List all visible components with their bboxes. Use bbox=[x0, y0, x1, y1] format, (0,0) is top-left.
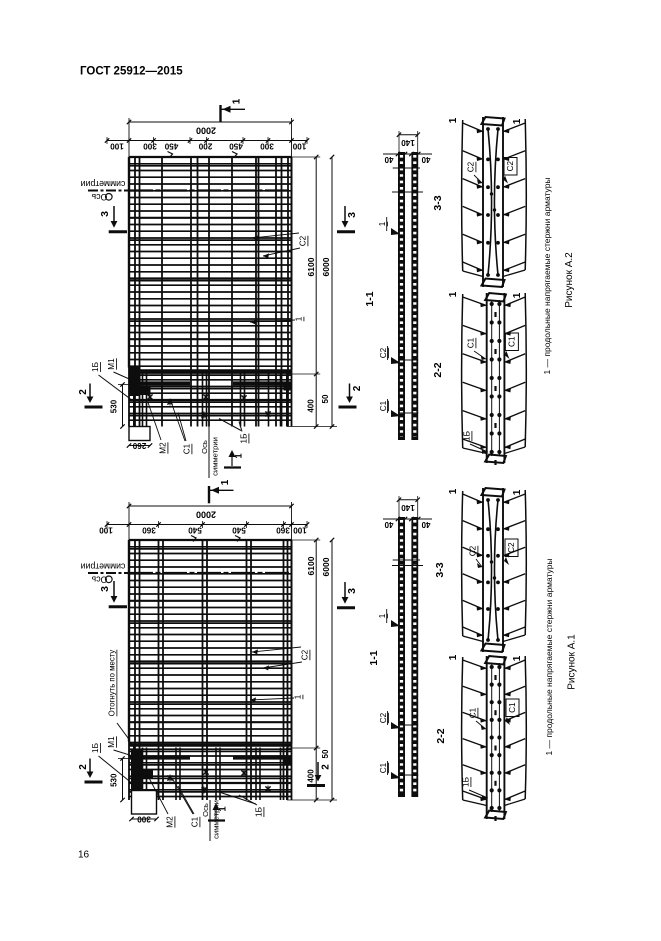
svg-text:Ось: Ось bbox=[201, 803, 210, 817]
svg-text:40: 40 bbox=[384, 155, 393, 164]
svg-text:2000: 2000 bbox=[196, 510, 216, 520]
svg-text:40: 40 bbox=[421, 520, 430, 529]
svg-text:100: 100 bbox=[292, 142, 306, 151]
svg-text:ГОСТ 25912—2015: ГОСТ 25912—2015 bbox=[80, 66, 183, 78]
svg-text:М2: М2 bbox=[159, 442, 168, 454]
svg-text:Ось: Ось bbox=[200, 440, 209, 454]
svg-text:450: 450 bbox=[229, 142, 243, 151]
svg-text:16: 16 bbox=[78, 850, 90, 861]
svg-text:3: 3 bbox=[99, 586, 111, 592]
svg-text:1: 1 bbox=[378, 613, 387, 618]
svg-text:С1: С1 bbox=[507, 336, 516, 347]
svg-text:100: 100 bbox=[99, 526, 113, 535]
svg-text:М2: М2 bbox=[166, 816, 175, 828]
svg-text:3: 3 bbox=[346, 212, 358, 218]
svg-text:300: 300 bbox=[260, 142, 274, 151]
svg-text:симметрии: симметрии bbox=[81, 562, 126, 572]
svg-text:2: 2 bbox=[352, 385, 363, 391]
svg-text:1 — продольные напрягаемые сте: 1 — продольные напрягаемые стержни армат… bbox=[544, 558, 554, 755]
svg-text:С1: С1 bbox=[191, 816, 200, 827]
svg-text:1Б: 1Б bbox=[240, 434, 249, 444]
svg-text:1: 1 bbox=[512, 655, 523, 661]
svg-text:2-2: 2-2 bbox=[435, 728, 447, 743]
svg-text:2000: 2000 bbox=[196, 126, 216, 136]
svg-text:1Б: 1Б bbox=[462, 777, 471, 787]
svg-text:1: 1 bbox=[378, 221, 387, 226]
svg-text:1Б: 1Б bbox=[91, 362, 100, 372]
svg-text:360: 360 bbox=[142, 526, 156, 535]
svg-text:1: 1 bbox=[218, 806, 229, 812]
svg-text:50: 50 bbox=[321, 749, 330, 758]
svg-text:200: 200 bbox=[198, 142, 212, 151]
svg-text:300: 300 bbox=[143, 142, 157, 151]
svg-text:2: 2 bbox=[78, 764, 89, 770]
svg-text:530: 530 bbox=[110, 399, 119, 413]
svg-text:С1: С1 bbox=[379, 400, 388, 411]
svg-text:450: 450 bbox=[164, 142, 178, 151]
svg-text:1: 1 bbox=[234, 453, 245, 459]
svg-text:1Б: 1Б bbox=[255, 807, 264, 817]
svg-text:1: 1 bbox=[448, 488, 459, 494]
svg-text:1: 1 bbox=[448, 291, 459, 297]
svg-text:С2: С2 bbox=[467, 161, 476, 172]
svg-text:6000: 6000 bbox=[321, 557, 331, 576]
svg-text:симметрии: симметрии bbox=[211, 437, 220, 476]
svg-text:3: 3 bbox=[346, 588, 358, 594]
svg-text:3-3: 3-3 bbox=[432, 195, 444, 210]
svg-text:50: 50 bbox=[321, 394, 330, 403]
svg-text:С2: С2 bbox=[507, 542, 516, 553]
svg-text:С2: С2 bbox=[379, 347, 388, 358]
svg-text:С1: С1 bbox=[183, 443, 192, 454]
svg-text:С2: С2 bbox=[301, 649, 310, 660]
svg-text:1-1: 1-1 bbox=[364, 291, 376, 306]
svg-text:3-3: 3-3 bbox=[434, 562, 446, 577]
svg-text:М1: М1 bbox=[107, 736, 116, 748]
svg-text:С1: С1 bbox=[469, 707, 478, 718]
svg-text:Рисунок А.2: Рисунок А.2 bbox=[564, 252, 575, 308]
svg-text:6100: 6100 bbox=[306, 556, 316, 575]
svg-text:260: 260 bbox=[132, 441, 146, 450]
svg-text:1-1: 1-1 bbox=[368, 650, 380, 665]
svg-text:360: 360 bbox=[276, 526, 290, 535]
svg-text:40: 40 bbox=[421, 155, 430, 164]
svg-text:С1: С1 bbox=[467, 337, 476, 348]
svg-text:1: 1 bbox=[295, 316, 304, 321]
svg-text:Отогнуть по месту: Отогнуть по месту bbox=[108, 650, 117, 717]
svg-text:2: 2 bbox=[78, 389, 89, 395]
svg-text:С1: С1 bbox=[508, 702, 517, 713]
svg-text:1: 1 bbox=[512, 118, 523, 124]
svg-text:1Б: 1Б bbox=[91, 743, 100, 753]
svg-text:2-2: 2-2 bbox=[432, 362, 444, 377]
svg-text:140: 140 bbox=[401, 138, 415, 147]
svg-text:С2: С2 bbox=[506, 161, 515, 172]
svg-text:1: 1 bbox=[448, 117, 459, 123]
svg-text:С2: С2 bbox=[299, 235, 308, 246]
svg-text:1: 1 bbox=[448, 654, 459, 660]
svg-text:1Б: 1Б bbox=[463, 431, 472, 441]
svg-text:Рисунок А.1: Рисунок А.1 bbox=[567, 634, 578, 690]
svg-text:100: 100 bbox=[293, 526, 307, 535]
svg-text:100: 100 bbox=[110, 142, 124, 151]
svg-text:300: 300 bbox=[137, 815, 151, 824]
svg-text:1: 1 bbox=[232, 98, 243, 104]
svg-text:1: 1 bbox=[220, 479, 231, 485]
svg-text:6100: 6100 bbox=[306, 257, 316, 276]
svg-text:140: 140 bbox=[401, 503, 415, 512]
svg-text:С2: С2 bbox=[469, 545, 478, 556]
svg-text:1: 1 bbox=[512, 292, 523, 298]
svg-text:1: 1 bbox=[294, 694, 303, 699]
svg-text:40: 40 bbox=[384, 520, 393, 529]
svg-text:1 — продольные напрягаемые сте: 1 — продольные напрягаемые стержни армат… bbox=[542, 177, 552, 374]
svg-text:540: 540 bbox=[232, 526, 246, 535]
svg-text:6000: 6000 bbox=[321, 257, 331, 276]
svg-text:530: 530 bbox=[110, 773, 119, 787]
svg-text:С2: С2 bbox=[379, 712, 388, 723]
svg-text:М1: М1 bbox=[107, 358, 116, 370]
svg-text:3: 3 bbox=[99, 211, 111, 217]
svg-text:540: 540 bbox=[188, 526, 202, 535]
svg-text:1: 1 bbox=[512, 489, 523, 495]
svg-text:симметрии: симметрии bbox=[81, 179, 126, 189]
svg-text:2: 2 bbox=[321, 764, 332, 770]
svg-text:С1: С1 bbox=[379, 762, 388, 773]
svg-text:400: 400 bbox=[307, 769, 316, 783]
svg-text:400: 400 bbox=[307, 399, 316, 413]
